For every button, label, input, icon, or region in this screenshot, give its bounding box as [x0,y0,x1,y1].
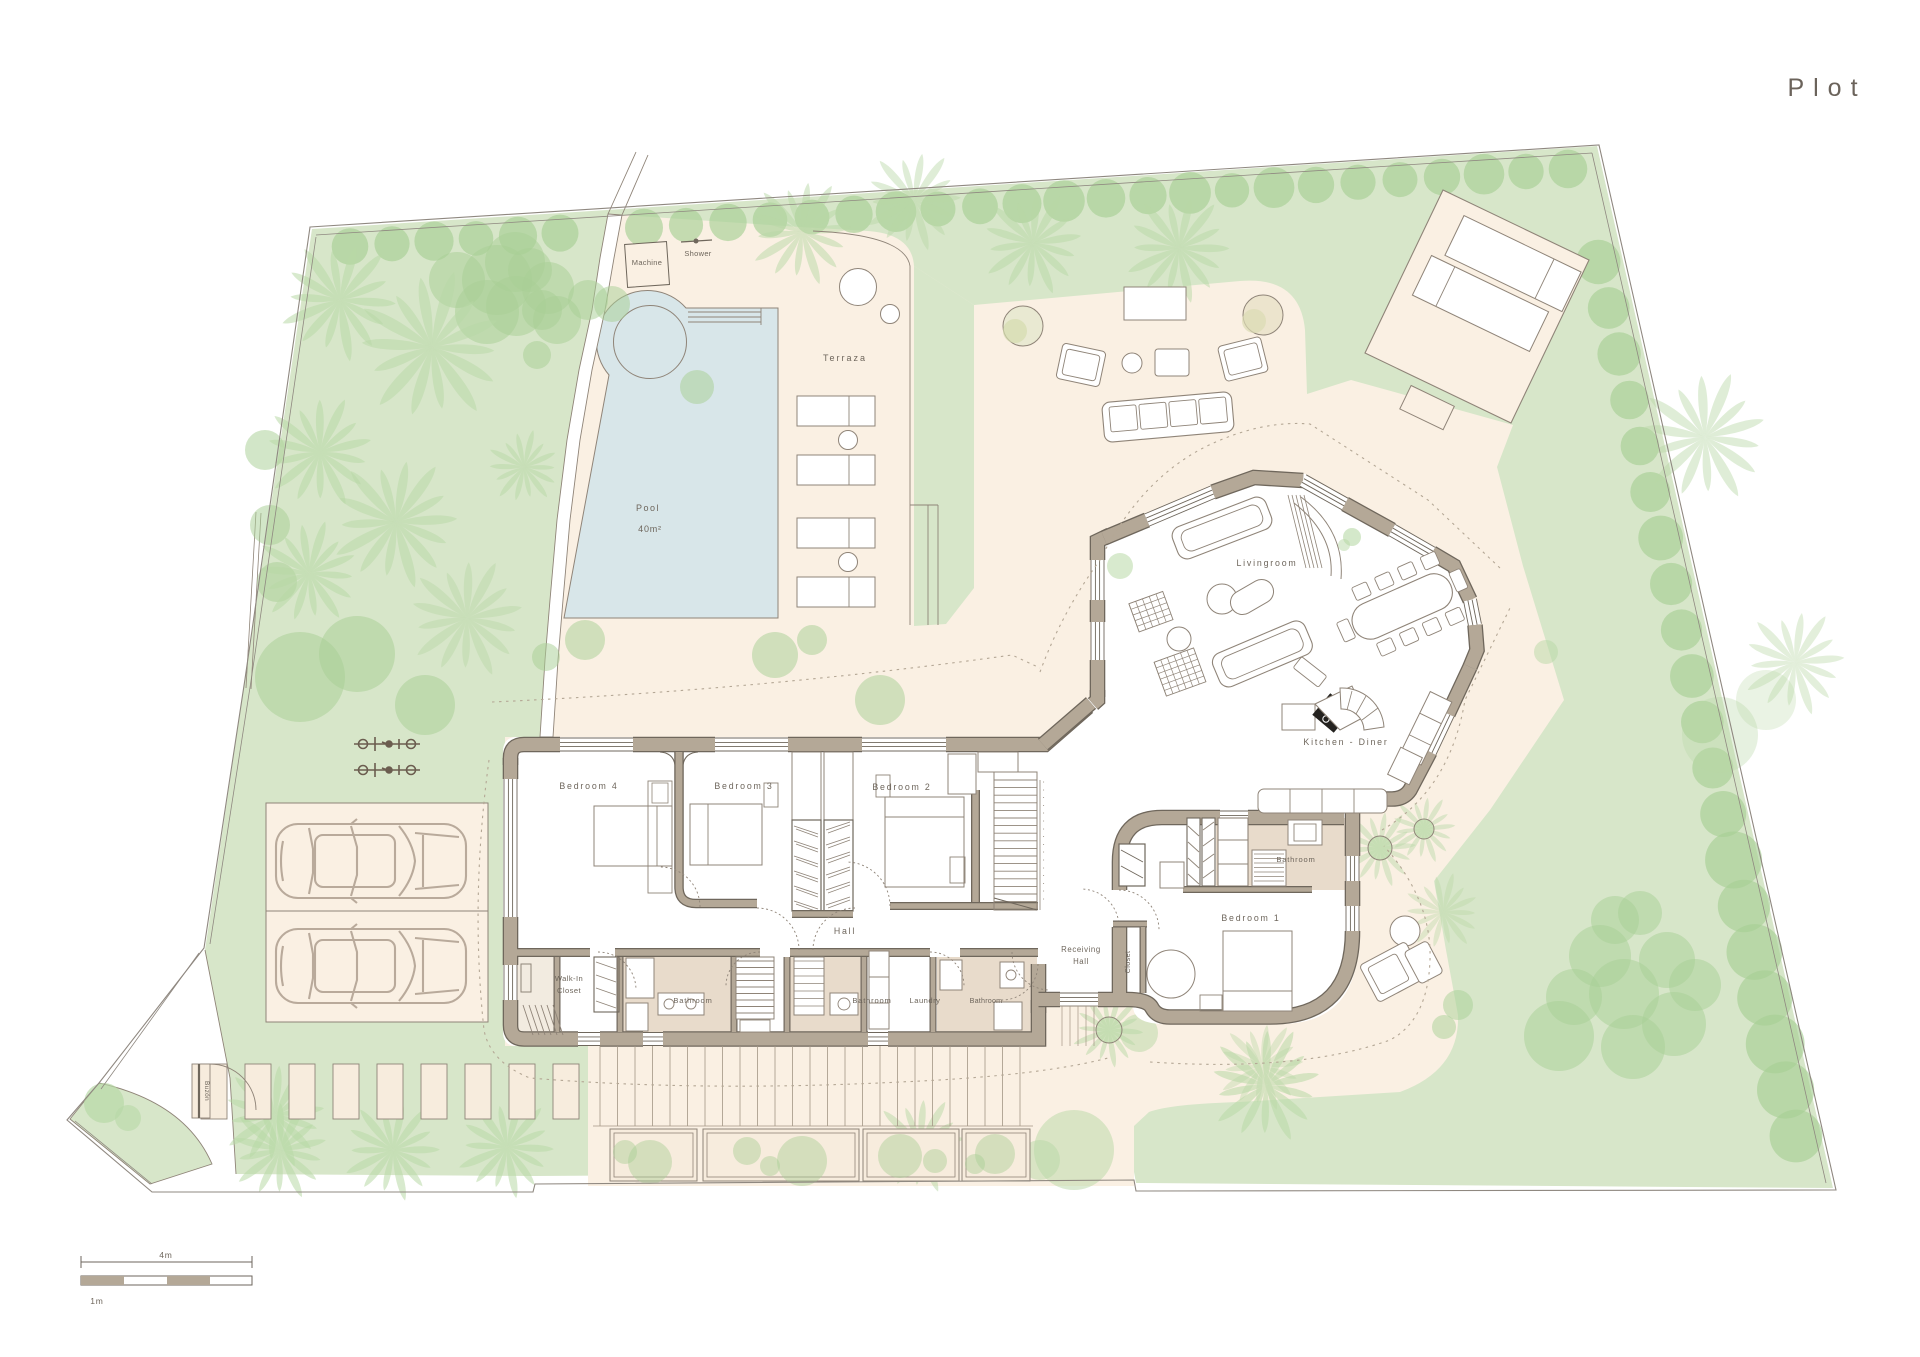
svg-text:Plot: Plot [1787,74,1866,102]
svg-text:Livingroom: Livingroom [1236,558,1297,568]
svg-text:Machine: Machine [632,258,662,267]
svg-text:Bathroom: Bathroom [1276,855,1315,864]
svg-text:Shower: Shower [684,249,711,258]
svg-text:Pool: Pool [636,503,660,513]
svg-text:Bedroom 3: Bedroom 3 [714,781,773,791]
svg-text:Bedroom 2: Bedroom 2 [872,782,931,792]
svg-text:Kitchen - Diner: Kitchen - Diner [1303,737,1388,747]
svg-text:4m: 4m [159,1250,172,1260]
svg-text:Buzón: Buzón [203,1081,210,1101]
svg-text:Terraza: Terraza [823,353,867,363]
svg-text:Walk-In: Walk-In [555,974,583,983]
svg-text:40m²: 40m² [638,524,662,534]
svg-text:Laundry: Laundry [910,996,941,1005]
svg-text:Bathroom: Bathroom [852,996,891,1005]
svg-text:Closet: Closet [1123,951,1132,974]
svg-text:Receiving: Receiving [1061,945,1101,954]
svg-text:Closet: Closet [557,986,581,995]
svg-text:Bathroom: Bathroom [970,996,1003,1005]
svg-text:Bedroom 4: Bedroom 4 [559,781,618,791]
svg-text:Hall: Hall [1073,957,1089,966]
svg-text:Bathroom: Bathroom [673,996,712,1005]
svg-text:Bedroom 1: Bedroom 1 [1221,913,1280,923]
svg-text:Hall: Hall [834,926,856,936]
svg-text:1m: 1m [90,1296,103,1306]
